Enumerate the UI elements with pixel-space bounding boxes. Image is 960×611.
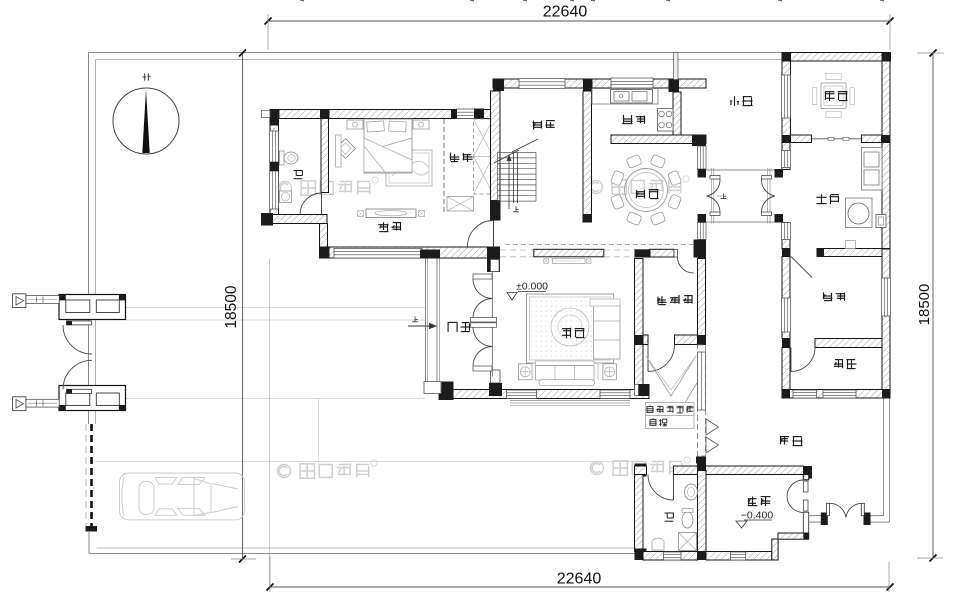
svg-text:±0.000: ±0.000 xyxy=(516,281,548,293)
svg-text:22640: 22640 xyxy=(543,4,588,21)
svg-text:18500: 18500 xyxy=(916,284,933,326)
svg-text:18500: 18500 xyxy=(223,285,240,328)
svg-text:22640: 22640 xyxy=(557,571,602,588)
